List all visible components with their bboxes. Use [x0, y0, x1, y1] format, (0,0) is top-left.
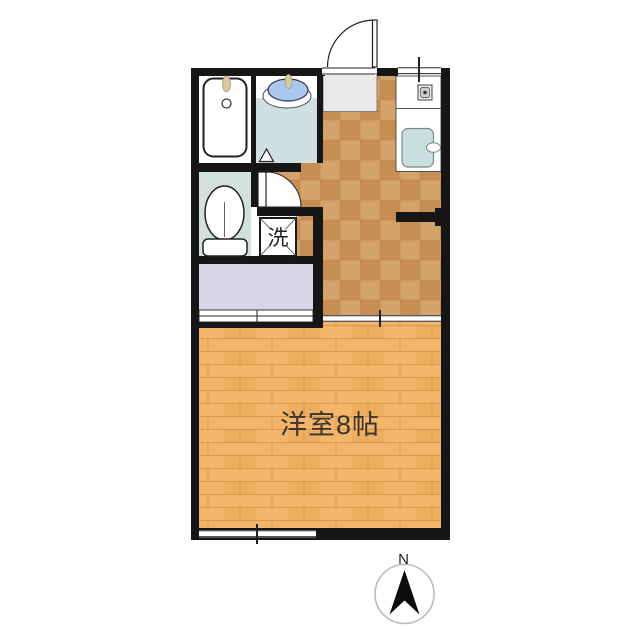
wall-right [441, 68, 450, 540]
toilet-door-leaf [258, 172, 266, 207]
closet-door-track-2 [199, 316, 313, 322]
bathtub-faucet-icon [223, 76, 231, 92]
compass-label: N [398, 551, 409, 568]
wall-bath-bottom [191, 163, 301, 172]
compass: N [375, 551, 434, 624]
closet-floor [199, 264, 313, 310]
wall-under-toilet-door [257, 207, 313, 216]
closet-sliding-doors [199, 310, 313, 322]
wall-closet-top [191, 256, 323, 264]
entrance-door-arc [328, 20, 375, 67]
wall-top-mid [377, 68, 398, 76]
entrance-door-leaf [373, 20, 378, 67]
bathtub-drain-icon [222, 99, 231, 108]
closet-door-track-1 [199, 310, 313, 316]
stove-center-dot [423, 91, 427, 95]
wall-closet-bottom [191, 322, 323, 328]
toilet-tank-icon [203, 239, 247, 256]
laundry-space: 洗 [260, 218, 296, 256]
room-label: 洋室8帖 [280, 410, 380, 440]
wall-kitchen-left [313, 207, 323, 322]
wall-kitchen-stub [396, 212, 441, 222]
wall-left [191, 68, 199, 540]
washbasin-faucet-icon [285, 75, 292, 89]
kitchen-sink-faucet-icon [427, 143, 441, 153]
entrance-genkan-floor [323, 74, 377, 112]
wall-washroom-right [317, 76, 323, 163]
floorplan-page: 洗 洋室8帖 N [0, 0, 640, 640]
wall-top-left [191, 68, 325, 76]
wall-toilet-right [251, 172, 258, 207]
kitchen-floor-laundry-strip [296, 216, 313, 256]
laundry-label: 洗 [268, 227, 289, 250]
wall-kitchen-stub-cap [435, 208, 450, 226]
wall-bath-wash-divider [251, 76, 256, 163]
floor-plan: 洗 洋室8帖 N [0, 0, 640, 640]
stove-icon [418, 85, 432, 100]
